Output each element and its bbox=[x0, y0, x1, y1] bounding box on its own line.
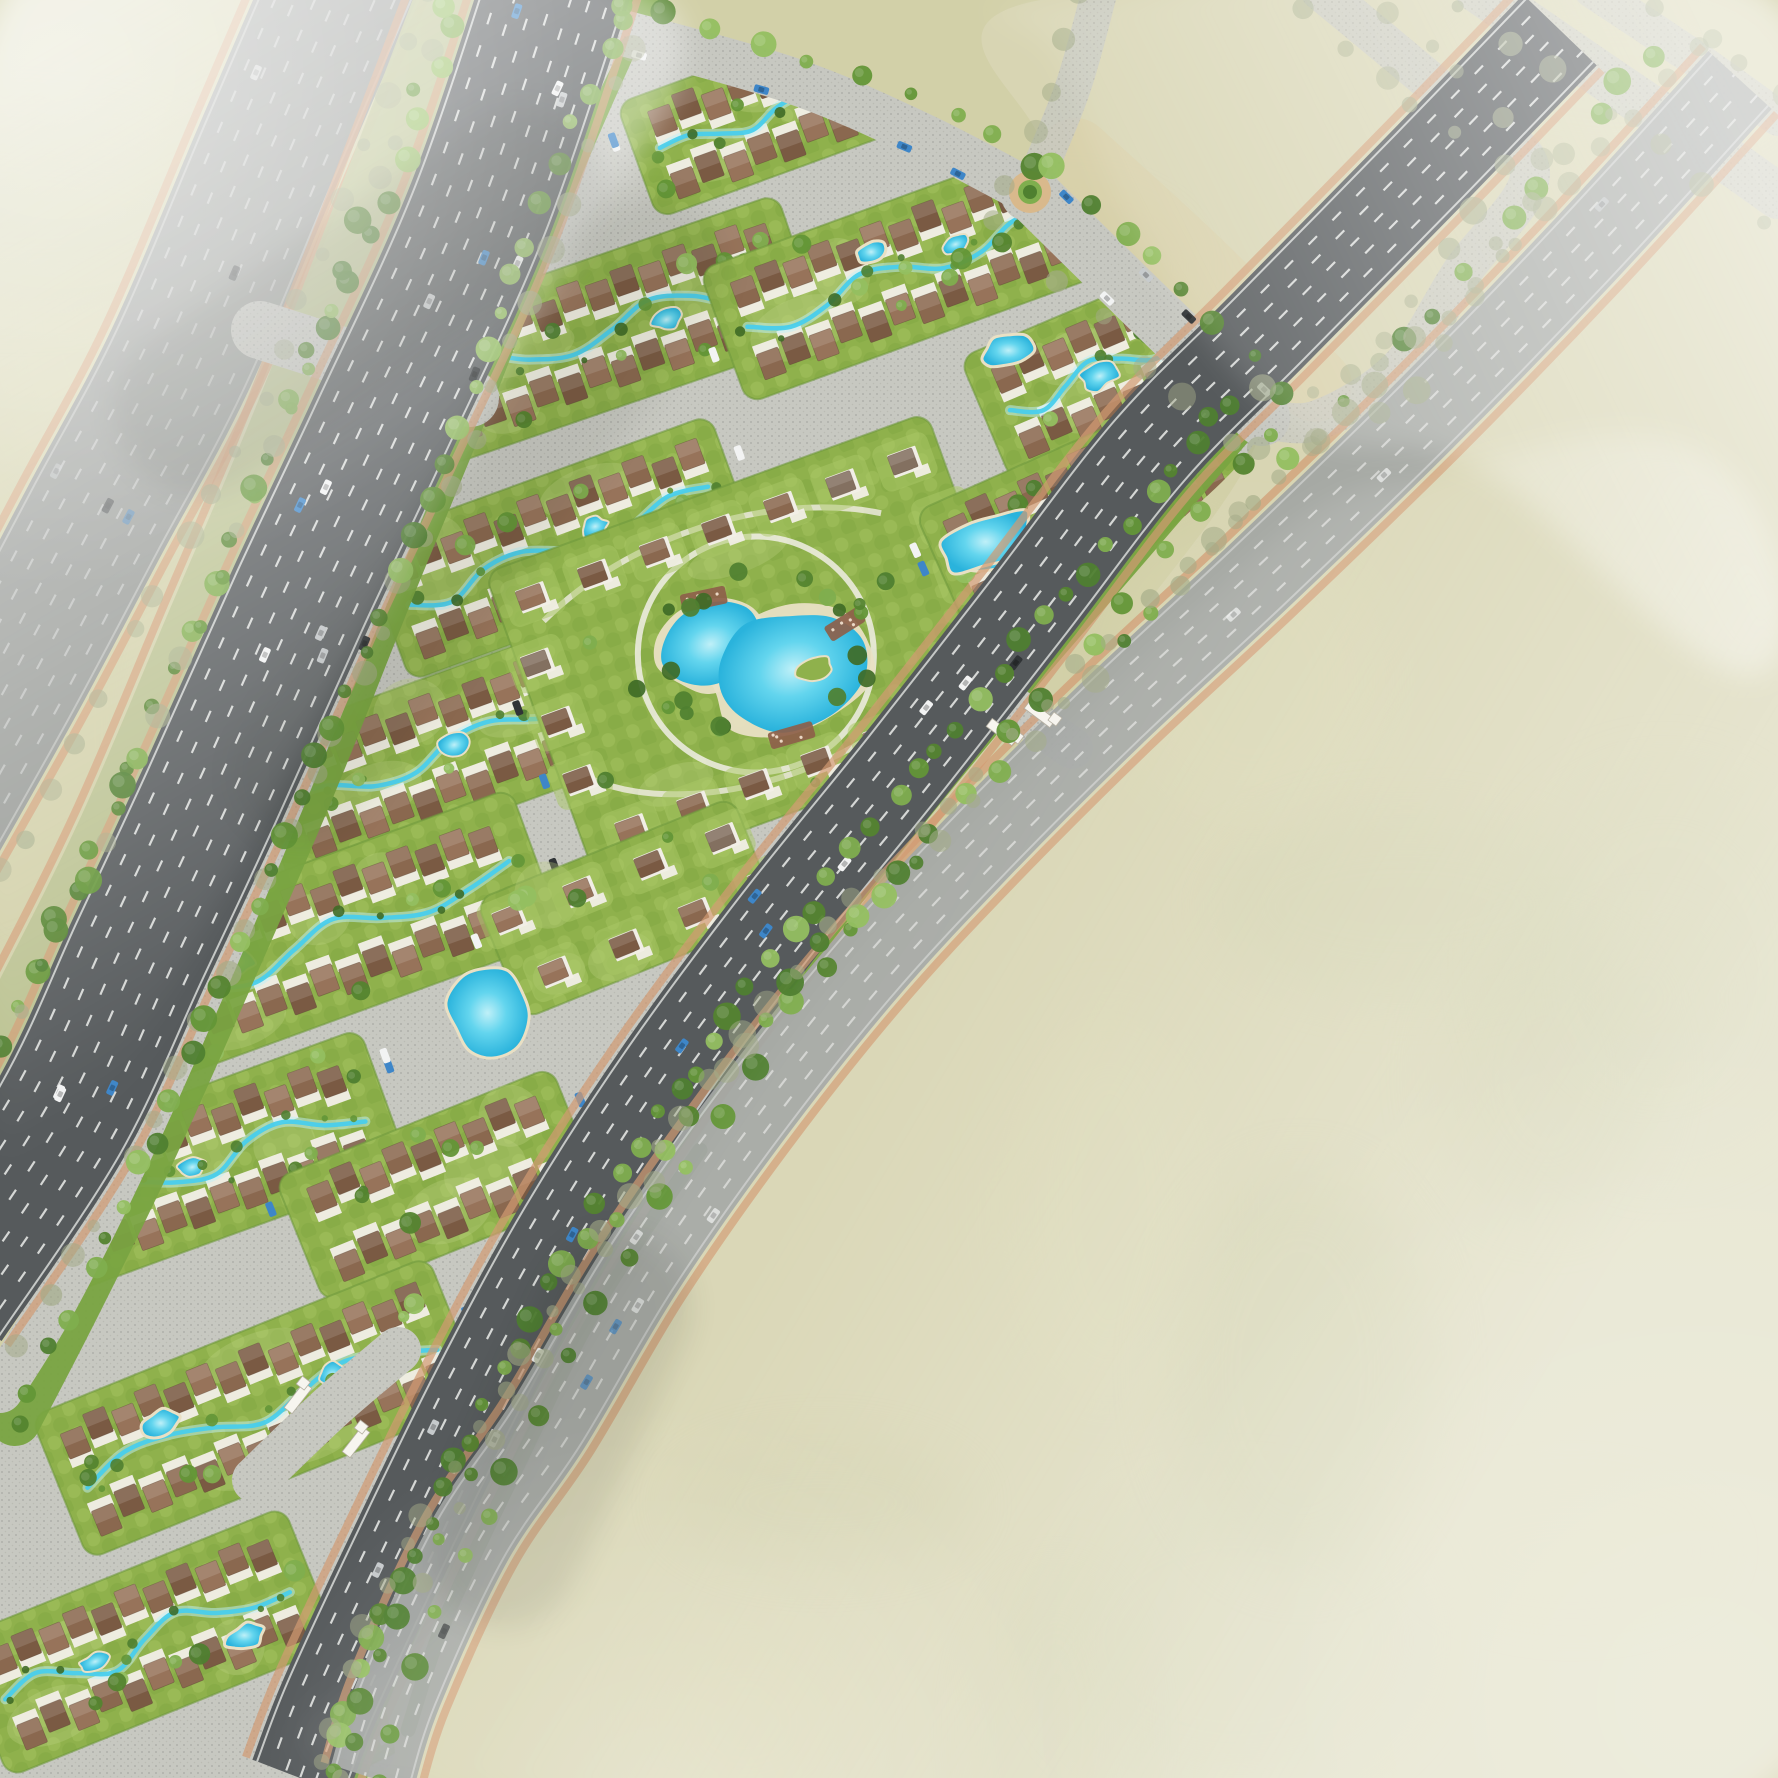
tree-highlight bbox=[1266, 430, 1272, 436]
tree-highlight bbox=[953, 110, 960, 117]
tree-highlight bbox=[1189, 434, 1200, 445]
tree-faded bbox=[1101, 634, 1118, 651]
tree-highlight bbox=[894, 787, 903, 796]
tree-faded bbox=[1141, 589, 1160, 608]
tree-highlight bbox=[842, 840, 852, 850]
tree-highlight bbox=[949, 724, 957, 732]
tree-faded bbox=[915, 822, 931, 838]
tree-highlight bbox=[972, 690, 983, 701]
tree-faded bbox=[983, 210, 1003, 230]
tree-highlight bbox=[889, 863, 900, 874]
tree-highlight bbox=[1100, 539, 1107, 546]
tree-highlight bbox=[653, 1106, 659, 1112]
tree-faded bbox=[1229, 501, 1249, 521]
tree-highlight bbox=[611, 1214, 618, 1221]
tree-highlight bbox=[586, 1195, 596, 1205]
tree-highlight bbox=[1126, 519, 1134, 527]
tree-highlight bbox=[763, 951, 771, 959]
tree-highlight bbox=[118, 1202, 124, 1208]
tree-highlight bbox=[911, 857, 917, 863]
tree-highlight bbox=[1159, 543, 1167, 551]
tree-highlight bbox=[717, 1006, 729, 1018]
master-plan-screenshot bbox=[0, 0, 1778, 1778]
tree-highlight bbox=[160, 1092, 170, 1102]
tree-faded bbox=[651, 1139, 666, 1154]
tree-faded bbox=[841, 888, 861, 908]
tree-highlight bbox=[184, 1044, 195, 1055]
tree-faded bbox=[753, 991, 780, 1018]
tree-faded bbox=[1065, 654, 1085, 674]
tree-highlight bbox=[1086, 636, 1096, 646]
tree-faded bbox=[1247, 437, 1270, 460]
tree-highlight bbox=[855, 68, 864, 77]
tree-highlight bbox=[997, 666, 1006, 675]
tree-faded bbox=[699, 1069, 721, 1091]
tree-highlight bbox=[1150, 483, 1161, 494]
tree-highlight bbox=[14, 1418, 22, 1426]
tree-faded bbox=[1201, 527, 1227, 553]
tree-faded bbox=[1006, 728, 1018, 740]
tree-highlight bbox=[20, 1387, 28, 1395]
site-plan-map bbox=[0, 0, 1778, 1778]
tree-highlight bbox=[875, 886, 887, 898]
tree-highlight bbox=[266, 865, 272, 871]
tree-faded bbox=[1096, 308, 1112, 324]
tree-highlight bbox=[1145, 607, 1152, 614]
tree-faded bbox=[819, 916, 837, 934]
tree-highlight bbox=[958, 786, 968, 796]
tree-highlight bbox=[674, 1081, 684, 1091]
tree-highlight bbox=[42, 1340, 49, 1347]
tree-highlight bbox=[61, 1313, 70, 1322]
tree-highlight bbox=[754, 35, 766, 47]
tree-faded bbox=[873, 868, 888, 883]
tree-faded bbox=[1133, 356, 1156, 379]
tree-faded bbox=[1024, 120, 1048, 144]
tree-faded bbox=[1042, 83, 1061, 102]
tree-faded bbox=[1041, 699, 1054, 712]
tree-highlight bbox=[1114, 595, 1124, 605]
tree-highlight bbox=[1279, 450, 1289, 460]
tree-highlight bbox=[849, 907, 860, 918]
tree-faded bbox=[61, 1243, 85, 1267]
tree-faded bbox=[1170, 576, 1190, 596]
tree-faded bbox=[668, 1106, 693, 1131]
tree-highlight bbox=[1041, 156, 1053, 168]
tree-highlight bbox=[100, 1233, 106, 1239]
tree-faded bbox=[145, 1111, 162, 1128]
tree-highlight bbox=[1193, 504, 1202, 513]
tree-highlight bbox=[738, 980, 746, 988]
tree-highlight bbox=[464, 1437, 472, 1445]
tree-highlight bbox=[194, 1009, 206, 1021]
tree-highlight bbox=[634, 1140, 643, 1149]
tree-highlight bbox=[477, 1400, 483, 1406]
tree-highlight bbox=[714, 1107, 725, 1118]
tree-faded bbox=[40, 1284, 62, 1306]
tree-faded bbox=[1168, 383, 1196, 411]
tree-highlight bbox=[1060, 589, 1067, 596]
tree-highlight bbox=[690, 1069, 697, 1076]
tree-faded bbox=[1058, 697, 1070, 709]
tree-faded bbox=[940, 798, 957, 815]
tree-highlight bbox=[1032, 691, 1043, 702]
tree-highlight bbox=[89, 1260, 99, 1270]
tree-highlight bbox=[210, 978, 220, 988]
tree-highlight bbox=[129, 1153, 140, 1164]
tree-faded bbox=[1223, 434, 1241, 452]
tree-highlight bbox=[1079, 566, 1090, 577]
tree-highlight bbox=[906, 89, 912, 95]
tree-highlight bbox=[708, 1035, 716, 1043]
tree-faded bbox=[5, 1334, 28, 1357]
tree-highlight bbox=[1024, 156, 1036, 168]
tree-highlight bbox=[1119, 225, 1130, 236]
tree-highlight bbox=[928, 746, 935, 753]
tree-highlight bbox=[232, 934, 241, 943]
tree-highlight bbox=[863, 820, 872, 829]
tree-highlight bbox=[1084, 198, 1093, 207]
tree-highlight bbox=[812, 935, 821, 944]
tree-faded bbox=[994, 175, 1015, 196]
tree-faded bbox=[644, 1171, 666, 1193]
tree-highlight bbox=[1201, 409, 1210, 418]
tree-faded bbox=[1180, 557, 1197, 574]
roundabout-tree bbox=[1023, 185, 1037, 199]
tree-faded bbox=[1046, 270, 1068, 292]
tree-highlight bbox=[1235, 455, 1245, 465]
tree-highlight bbox=[1009, 630, 1020, 641]
tree-highlight bbox=[702, 21, 711, 30]
tree-highlight bbox=[805, 904, 815, 914]
tree-highlight bbox=[911, 761, 920, 770]
tree-faded bbox=[617, 1183, 643, 1209]
tree-highlight bbox=[991, 763, 1001, 773]
tree-highlight bbox=[615, 1166, 624, 1175]
tree-highlight bbox=[499, 1362, 506, 1369]
tree-faded bbox=[966, 794, 980, 808]
tree-highlight bbox=[820, 960, 829, 969]
tree-highlight bbox=[253, 900, 261, 908]
tree-highlight bbox=[680, 1162, 686, 1168]
tree-highlight bbox=[985, 127, 993, 135]
tree-highlight bbox=[819, 870, 827, 878]
tree-faded bbox=[968, 767, 983, 782]
tree-highlight bbox=[786, 919, 798, 931]
tree-faded bbox=[1271, 470, 1286, 485]
tree-highlight bbox=[1037, 608, 1046, 617]
tree-highlight bbox=[801, 56, 807, 62]
tree-highlight bbox=[149, 1136, 159, 1146]
tree-faded bbox=[790, 965, 805, 980]
tree-faded bbox=[729, 1020, 757, 1048]
tree-highlight bbox=[1165, 466, 1171, 472]
tree-highlight bbox=[1222, 398, 1231, 407]
tree-highlight bbox=[1119, 636, 1125, 642]
tree-faded bbox=[88, 1220, 100, 1232]
